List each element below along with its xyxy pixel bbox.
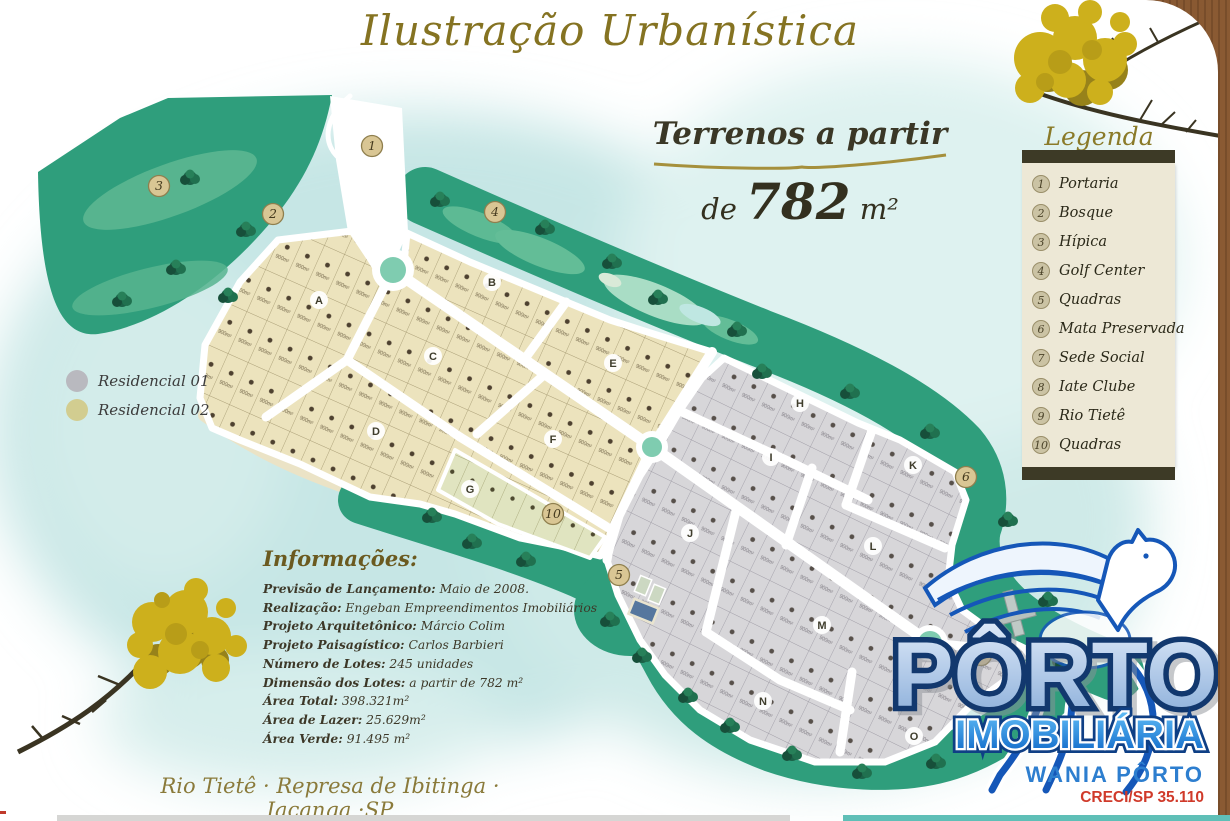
legend-item-label: Bosque: [1059, 205, 1113, 221]
info-line: Projeto Paisagístico: Carlos Barbieri: [263, 636, 593, 655]
legend-item-label: Portaria: [1059, 176, 1119, 192]
logo-agent: WANIA PÔRTO: [1026, 762, 1204, 787]
legend-item: 8Iate Clube: [1032, 378, 1175, 396]
block-chip: K: [904, 456, 922, 474]
legend-item-number: 1: [1032, 175, 1050, 193]
logo-line2: IMOBILIÁRIA: [955, 712, 1204, 757]
svg-text:O: O: [910, 731, 919, 743]
info-block: Informações: Previsão de Lançamento: Mai…: [263, 546, 593, 748]
residencial-02-row: Residencial 02: [66, 399, 210, 421]
block-chip: J: [681, 524, 699, 542]
block-chip: B: [483, 273, 501, 291]
offer-line2: de 782 m²: [638, 172, 962, 231]
legend-item-label: Quadras: [1059, 437, 1121, 453]
logo-creci: CRECI/SP 35.110: [1080, 789, 1204, 806]
legend-item-number: 3: [1032, 233, 1050, 251]
info-line: Área Verde: 91.495 m²: [263, 730, 593, 749]
svg-text:4: 4: [490, 204, 499, 219]
svg-text:E: E: [609, 358, 616, 370]
svg-text:C: C: [429, 351, 437, 363]
svg-text:D: D: [372, 426, 380, 438]
block-chip: C: [424, 347, 442, 365]
svg-text:L: L: [870, 541, 877, 553]
legend-item-number: 7: [1032, 349, 1050, 367]
offer-unit: m²: [860, 192, 899, 226]
info-line: Área de Lazer: 25.629m²: [263, 711, 593, 730]
legend-item: 3Hípica: [1032, 233, 1175, 251]
residencial-01-label: Residencial 01: [98, 372, 210, 390]
info-line: Dimensão dos Lotes: a partir de 782 m²: [263, 674, 593, 693]
info-line: Previsão de Lançamento: Maio de 2008.: [263, 580, 593, 599]
legend-item-number: 6: [1032, 320, 1050, 338]
residencial-02-swatch: [66, 399, 88, 421]
map-marker: 2: [263, 204, 284, 225]
svg-text:N: N: [759, 696, 767, 708]
map-marker: 6: [956, 467, 977, 488]
legend-item-number: 9: [1032, 407, 1050, 425]
gold-swoosh: [650, 152, 950, 170]
map-marker: 10: [543, 504, 564, 525]
legend-item-number: 4: [1032, 262, 1050, 280]
legend-item-label: Iate Clube: [1059, 379, 1135, 395]
legend-item-label: Mata Preservada: [1059, 321, 1185, 337]
legend-bar-bottom: [1022, 467, 1175, 480]
block-chip: L: [864, 537, 882, 555]
legend-item: 7Sede Social: [1032, 349, 1175, 367]
bottom-edge-mark: [0, 811, 6, 814]
residencial-02-label: Residencial 02: [98, 401, 210, 419]
block-chip: F: [544, 430, 562, 448]
svg-text:1: 1: [368, 138, 376, 153]
logo-name: PÔRTO: [892, 623, 1217, 726]
offer-prefix: de: [701, 192, 737, 226]
legend-item-label: Rio Tietê: [1059, 408, 1125, 424]
info-title: Informações:: [263, 546, 593, 571]
svg-text:J: J: [687, 528, 693, 540]
offer-value: 782: [746, 172, 850, 231]
legend-item-number: 8: [1032, 378, 1050, 396]
legend-item: 9Rio Tietê: [1032, 407, 1175, 425]
legend-item: 1Portaria: [1032, 175, 1175, 193]
residencial-legend: Residencial 01 Residencial 02: [66, 370, 210, 421]
legend-bar-top: [1022, 150, 1175, 163]
legend-item: 2Bosque: [1032, 204, 1175, 222]
bottom-strip-teal: [843, 815, 1230, 821]
svg-text:I: I: [769, 452, 772, 464]
legend-panel: 1Portaria 2Bosque 3Hípica 4Golf Center 5…: [1022, 163, 1175, 467]
legend-item-number: 2: [1032, 204, 1050, 222]
svg-text:A: A: [315, 295, 323, 307]
legend-item-number: 10: [1032, 436, 1050, 454]
legend-item-label: Quadras: [1059, 292, 1121, 308]
info-line: Realização: Engeban Empreendimentos Imob…: [263, 599, 593, 618]
illustration-page: 900m² 900m²: [0, 0, 1218, 821]
block-chip: A: [310, 291, 328, 309]
bottom-strip-gray: [57, 815, 790, 821]
info-line: Área Total: 398.321m²: [263, 692, 593, 711]
svg-text:G: G: [466, 484, 475, 496]
svg-text:H: H: [796, 398, 804, 410]
legend-item: 10Quadras: [1032, 436, 1175, 454]
block-chip: M: [813, 616, 831, 634]
svg-text:10: 10: [545, 506, 561, 521]
svg-text:6: 6: [962, 469, 970, 484]
offer-block: Terrenos a partir de 782 m²: [638, 116, 962, 231]
legend-title: Legenda: [1028, 122, 1170, 151]
block-chip: I: [762, 448, 780, 466]
location-tagline: Rio Tietê · Represa de Ibitinga · Iacang…: [130, 774, 530, 821]
legend-item-number: 5: [1032, 291, 1050, 309]
legend-item-label: Hípica: [1059, 234, 1107, 250]
svg-text:2: 2: [268, 206, 277, 221]
map-marker: 5: [609, 565, 630, 586]
map-marker: 3: [149, 176, 170, 197]
legend-item-label: Sede Social: [1059, 350, 1145, 366]
info-line: Projeto Arquitetônico: Márcio Colim: [263, 617, 593, 636]
legend-item-label: Golf Center: [1059, 263, 1144, 279]
svg-text:K: K: [909, 460, 917, 472]
block-chip: G: [461, 480, 479, 498]
legend-item: 4Golf Center: [1032, 262, 1175, 280]
map-marker: 1: [362, 136, 383, 157]
residencial-01-swatch: [66, 370, 88, 392]
info-line: Número de Lotes: 245 unidades: [263, 655, 593, 674]
svg-text:3: 3: [155, 178, 163, 193]
svg-text:M: M: [817, 620, 826, 632]
page-title: Ilustração Urbanística: [320, 6, 900, 55]
block-chip: H: [791, 394, 809, 412]
offer-line1: Terrenos a partir: [638, 116, 962, 152]
block-chip: N: [754, 692, 772, 710]
block-chip: D: [367, 422, 385, 440]
residencial-01-row: Residencial 01: [66, 370, 210, 392]
svg-text:B: B: [488, 277, 496, 289]
svg-text:F: F: [550, 434, 557, 446]
block-chip: E: [604, 354, 622, 372]
map-marker: 4: [485, 202, 506, 223]
svg-text:5: 5: [615, 567, 623, 582]
legend-item: 5Quadras: [1032, 291, 1175, 309]
legend-item: 6Mata Preservada: [1032, 320, 1175, 338]
